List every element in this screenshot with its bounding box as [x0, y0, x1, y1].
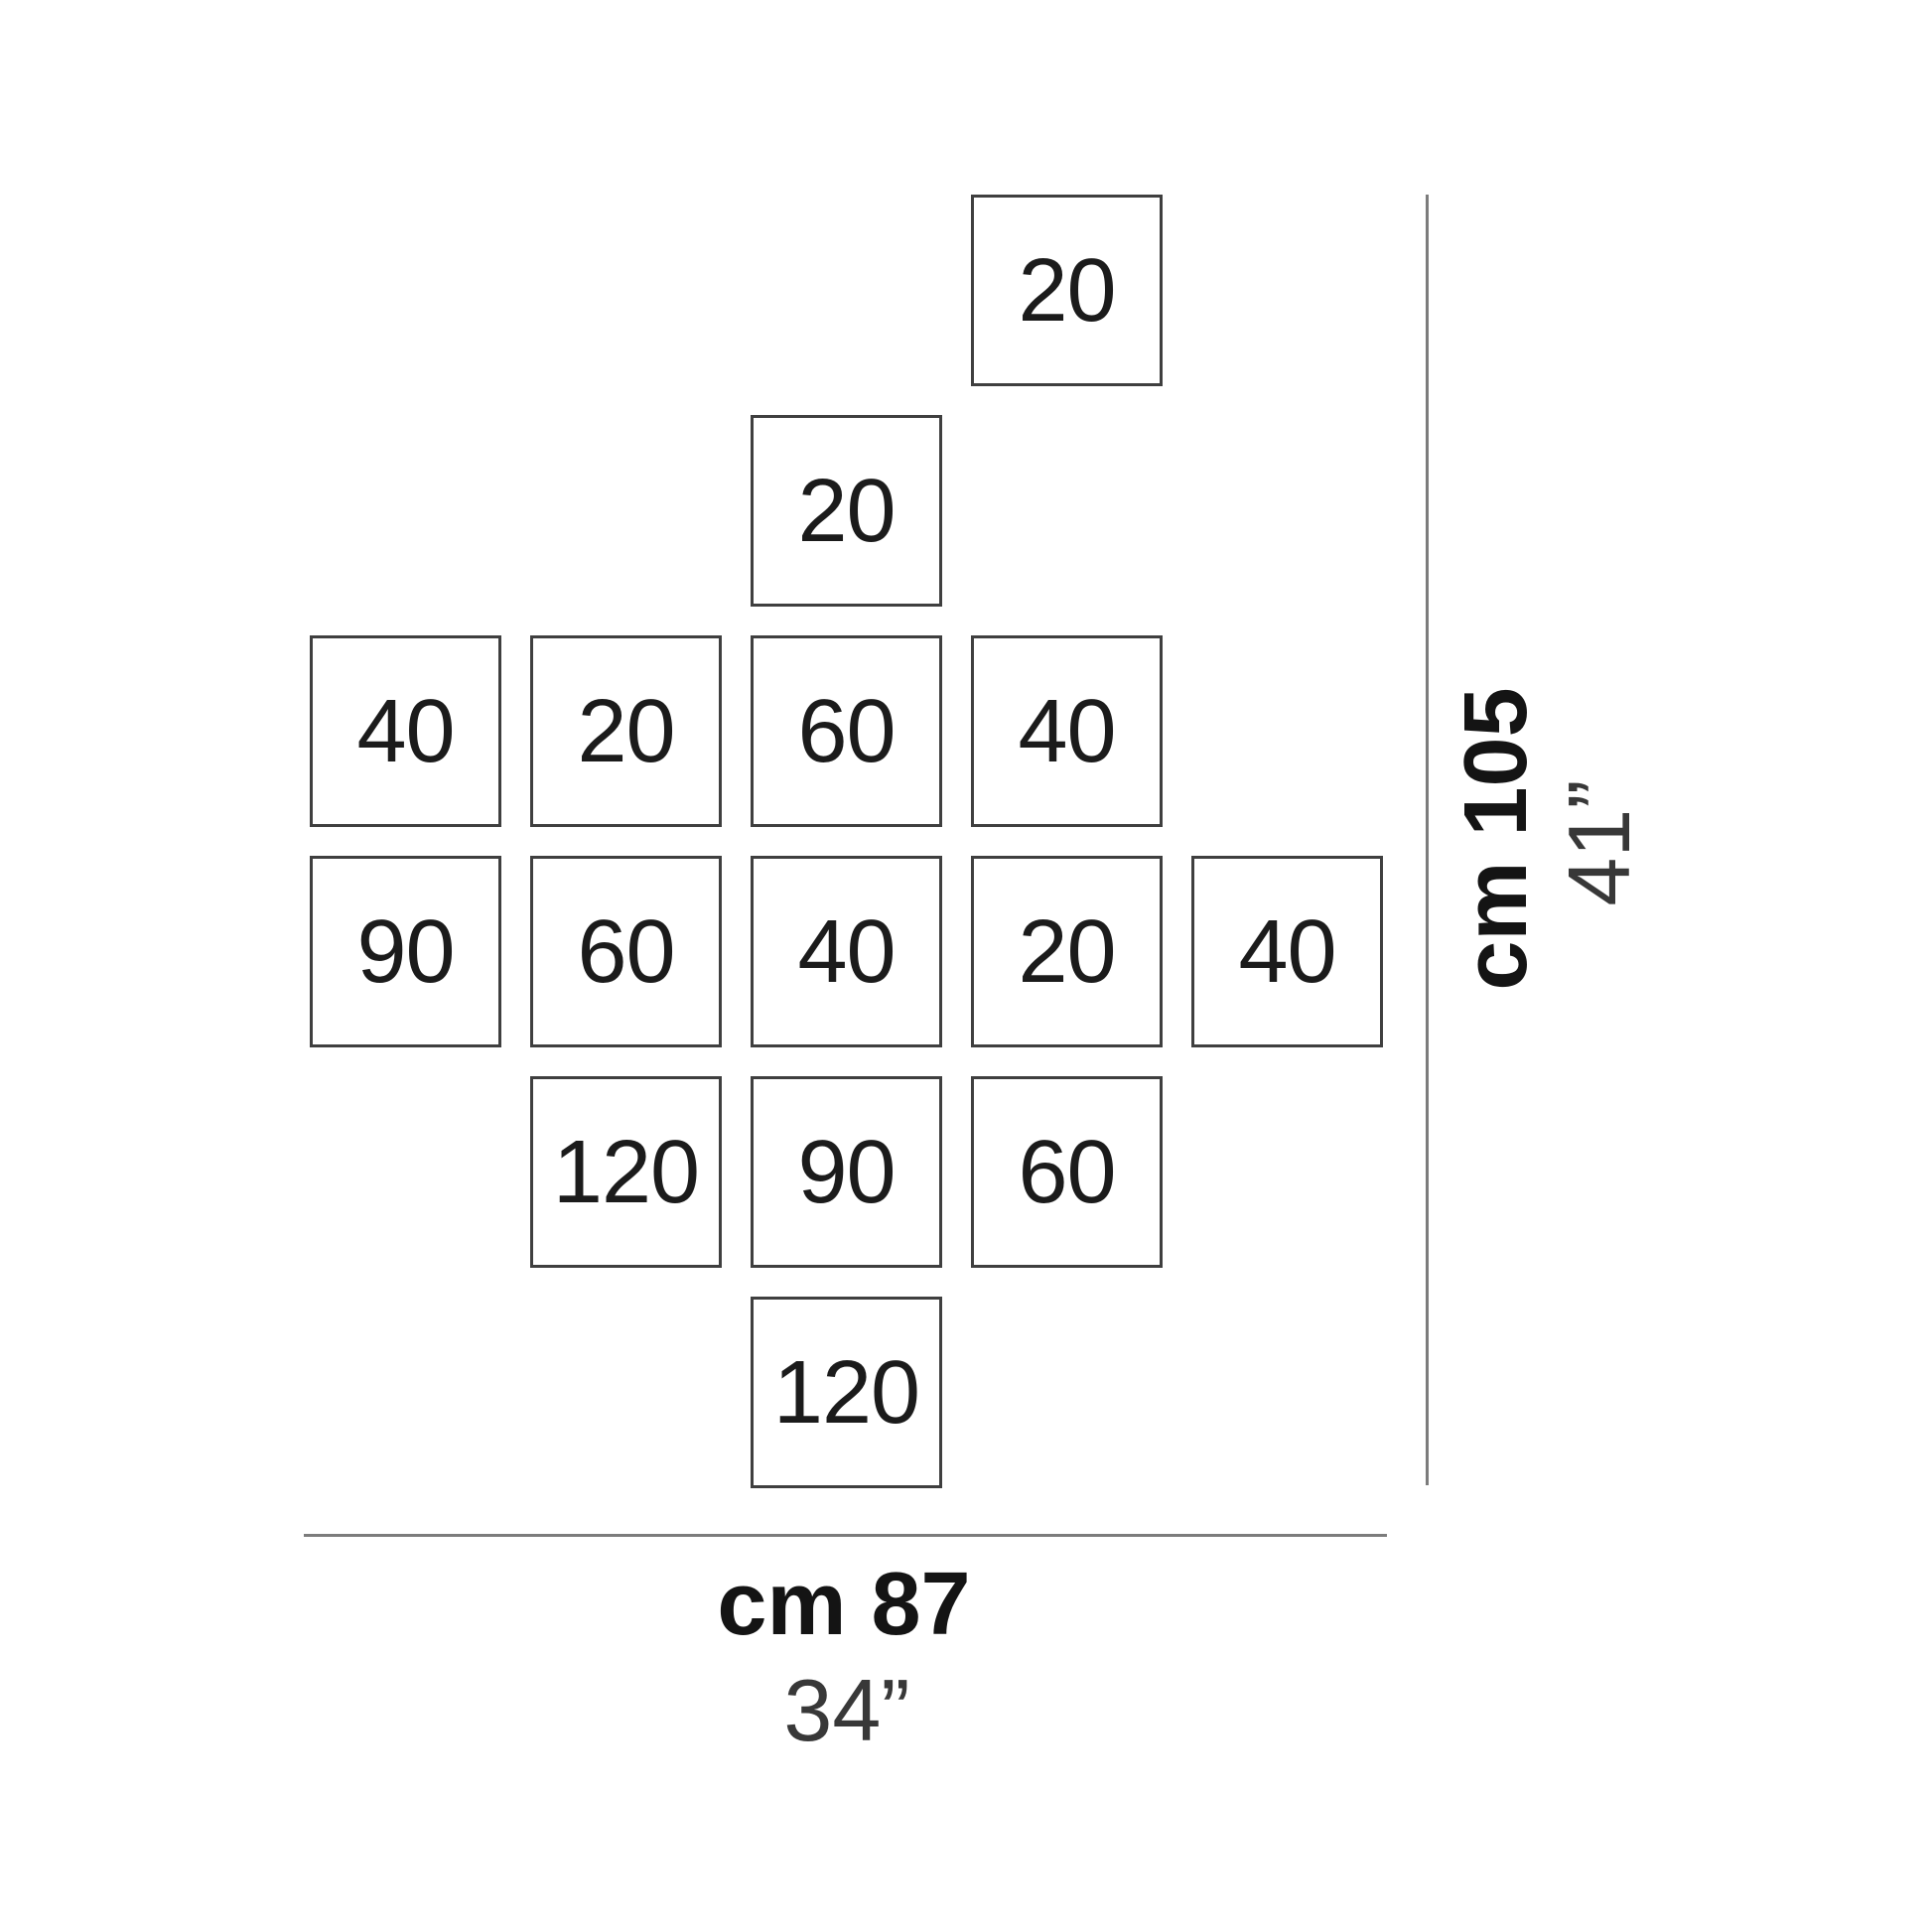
height-inch-label: 41”: [1556, 779, 1643, 905]
size-tile: 60: [530, 856, 722, 1047]
size-tile: 40: [751, 856, 942, 1047]
size-tile: 90: [310, 856, 501, 1047]
tile-size-label: 40: [1238, 907, 1335, 997]
tile-size-label: 120: [553, 1128, 699, 1217]
size-tile: 40: [1191, 856, 1383, 1047]
size-tile: 40: [971, 635, 1163, 827]
size-tile: 90: [751, 1076, 942, 1268]
size-tile: 120: [751, 1297, 942, 1488]
tile-size-label: 90: [356, 907, 454, 997]
dimension-diagram: 20 20 40 20 60 40 90 60 40 20 40 120 90 …: [0, 0, 1932, 1932]
size-tile: 20: [971, 856, 1163, 1047]
tile-size-label: 60: [577, 907, 674, 997]
height-dimension-line: [1426, 195, 1429, 1485]
tile-size-label: 40: [1018, 687, 1115, 776]
width-cm-label: cm 87: [717, 1560, 970, 1649]
tile-size-label: 20: [1018, 246, 1115, 336]
tile-size-label: 40: [356, 687, 454, 776]
size-tile: 20: [751, 415, 942, 607]
tile-size-label: 40: [797, 907, 895, 997]
tile-size-label: 20: [797, 467, 895, 556]
height-cm-label: cm 105: [1451, 687, 1541, 990]
width-dimension-line: [304, 1534, 1387, 1537]
size-tile: 40: [310, 635, 501, 827]
tile-size-label: 60: [797, 687, 895, 776]
tile-size-label: 90: [797, 1128, 895, 1217]
tile-size-label: 20: [1018, 907, 1115, 997]
size-tile: 120: [530, 1076, 722, 1268]
size-tile: 20: [971, 195, 1163, 386]
tile-size-label: 20: [577, 687, 674, 776]
size-tile: 20: [530, 635, 722, 827]
width-inch-label: 34”: [783, 1667, 909, 1754]
size-tile: 60: [751, 635, 942, 827]
tile-size-label: 120: [773, 1348, 919, 1438]
size-tile: 60: [971, 1076, 1163, 1268]
tile-size-label: 60: [1018, 1128, 1115, 1217]
